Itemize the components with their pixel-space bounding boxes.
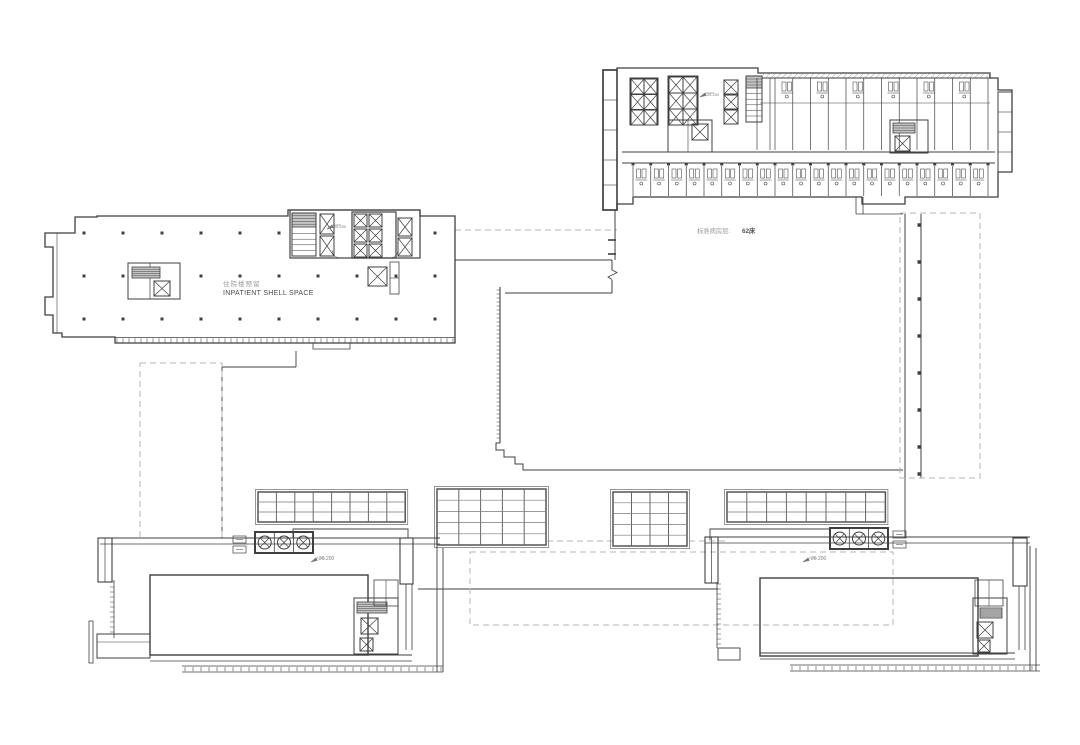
elevator-shaft-icon [369,214,382,227]
bed-icon [636,169,648,185]
elevator-shaft-icon [724,110,738,124]
skylight-grid [256,490,408,525]
skylight-grid [725,490,888,525]
elevator-shaft-icon [724,95,738,109]
level-marker-podium-right: 26.200 [811,556,827,562]
bed-icon [778,169,790,185]
skylight-grid [611,490,690,549]
elevator-shaft-icon [631,110,644,125]
elevator-shaft-icon [320,214,334,234]
bed-icon [724,169,736,185]
elevator-shaft-icon [895,136,910,151]
skylight-grid [435,487,549,548]
elevator-shaft-icon [683,109,697,125]
bed-icon [937,169,949,185]
bed-icon [866,169,878,185]
stair-hatch [893,123,915,133]
bed-icon [653,169,665,185]
bed-icon [831,169,843,185]
bed-icon [852,82,864,98]
elevator-shaft-icon [360,638,373,651]
elevator-shaft-icon [724,80,738,94]
elevator-shaft-icon [354,244,367,257]
stair-hatch [746,76,762,88]
bed-icon [707,169,719,185]
bed-icon [959,82,971,98]
bed-icon [742,169,754,185]
elevator-shaft-icon [320,236,334,256]
elevator-shaft-icon [398,218,412,236]
bed-icon [849,169,861,185]
building-podium-right [705,528,1040,671]
bed-icon [781,82,793,98]
building-inpatient-shell [45,210,455,349]
level-marker-podium-left: 26.200 [319,556,335,562]
elevator-shaft-icon [354,214,367,227]
level-marker-ward: 26.200 [707,92,720,97]
label-ward-floor-beds: 62床 [742,226,756,235]
elevator-shaft-icon [369,229,382,242]
floor-plan-drawing: 住院楼预留 INPATIENT SHELL SPACE 标准病房层: 62床 2… [0,0,1080,745]
elevator-shaft-icon [368,267,387,286]
elevator-shaft-icon [644,79,657,94]
floor-plan-canvas: 住院楼预留 INPATIENT SHELL SPACE 标准病房层: 62床 2… [0,0,1080,745]
building-ward-tower [603,68,1012,214]
level-marker-shell: 26.200 [334,224,347,229]
stair-hatch [980,608,1002,618]
elevator-shaft-icon [977,622,993,638]
elevator-shaft-icon [644,110,657,125]
elevator-shaft-icon [369,244,382,257]
elevator-shaft-icon [669,93,683,109]
stair-hatch [132,267,160,278]
bed-icon [689,169,701,185]
bed-icon [817,82,829,98]
bed-icon [813,169,825,185]
elevator-shaft-icon [683,77,697,93]
corridors-and-reference-lines [140,210,980,625]
elevator-shaft-icon [398,238,412,256]
elevator-shaft-icon [978,640,990,652]
building-podium-left [89,532,443,672]
bed-icon [888,82,900,98]
elevator-shaft-icon [644,95,657,110]
label-shell-space-cn: 住院楼预留 [223,279,261,288]
stair-hatch [357,602,387,613]
label-shell-space-en: INPATIENT SHELL SPACE [223,290,314,297]
elevator-shaft-icon [361,618,378,634]
bed-icon [902,169,914,185]
label-ward-floor-prefix: 标准病房层: [697,226,730,235]
bed-icon [795,169,807,185]
bed-icon [760,169,772,185]
elevator-shaft-icon [631,95,644,110]
bed-icon [884,169,896,185]
bed-icon [923,82,935,98]
bed-icon [973,169,985,185]
elevator-shaft-icon [692,124,708,140]
elevator-shaft-icon [631,79,644,94]
elevator-shaft-icon [683,93,697,109]
skylight-grids [256,487,888,549]
elevator-shaft-icon [154,281,170,296]
bed-icon [955,169,967,185]
bed-icon [920,169,932,185]
elevator-shaft-icon [669,77,683,93]
bed-icon [671,169,683,185]
stair-hatch [292,213,316,227]
elevator-shaft-icon [669,109,683,125]
elevator-shaft-icon [354,229,367,242]
